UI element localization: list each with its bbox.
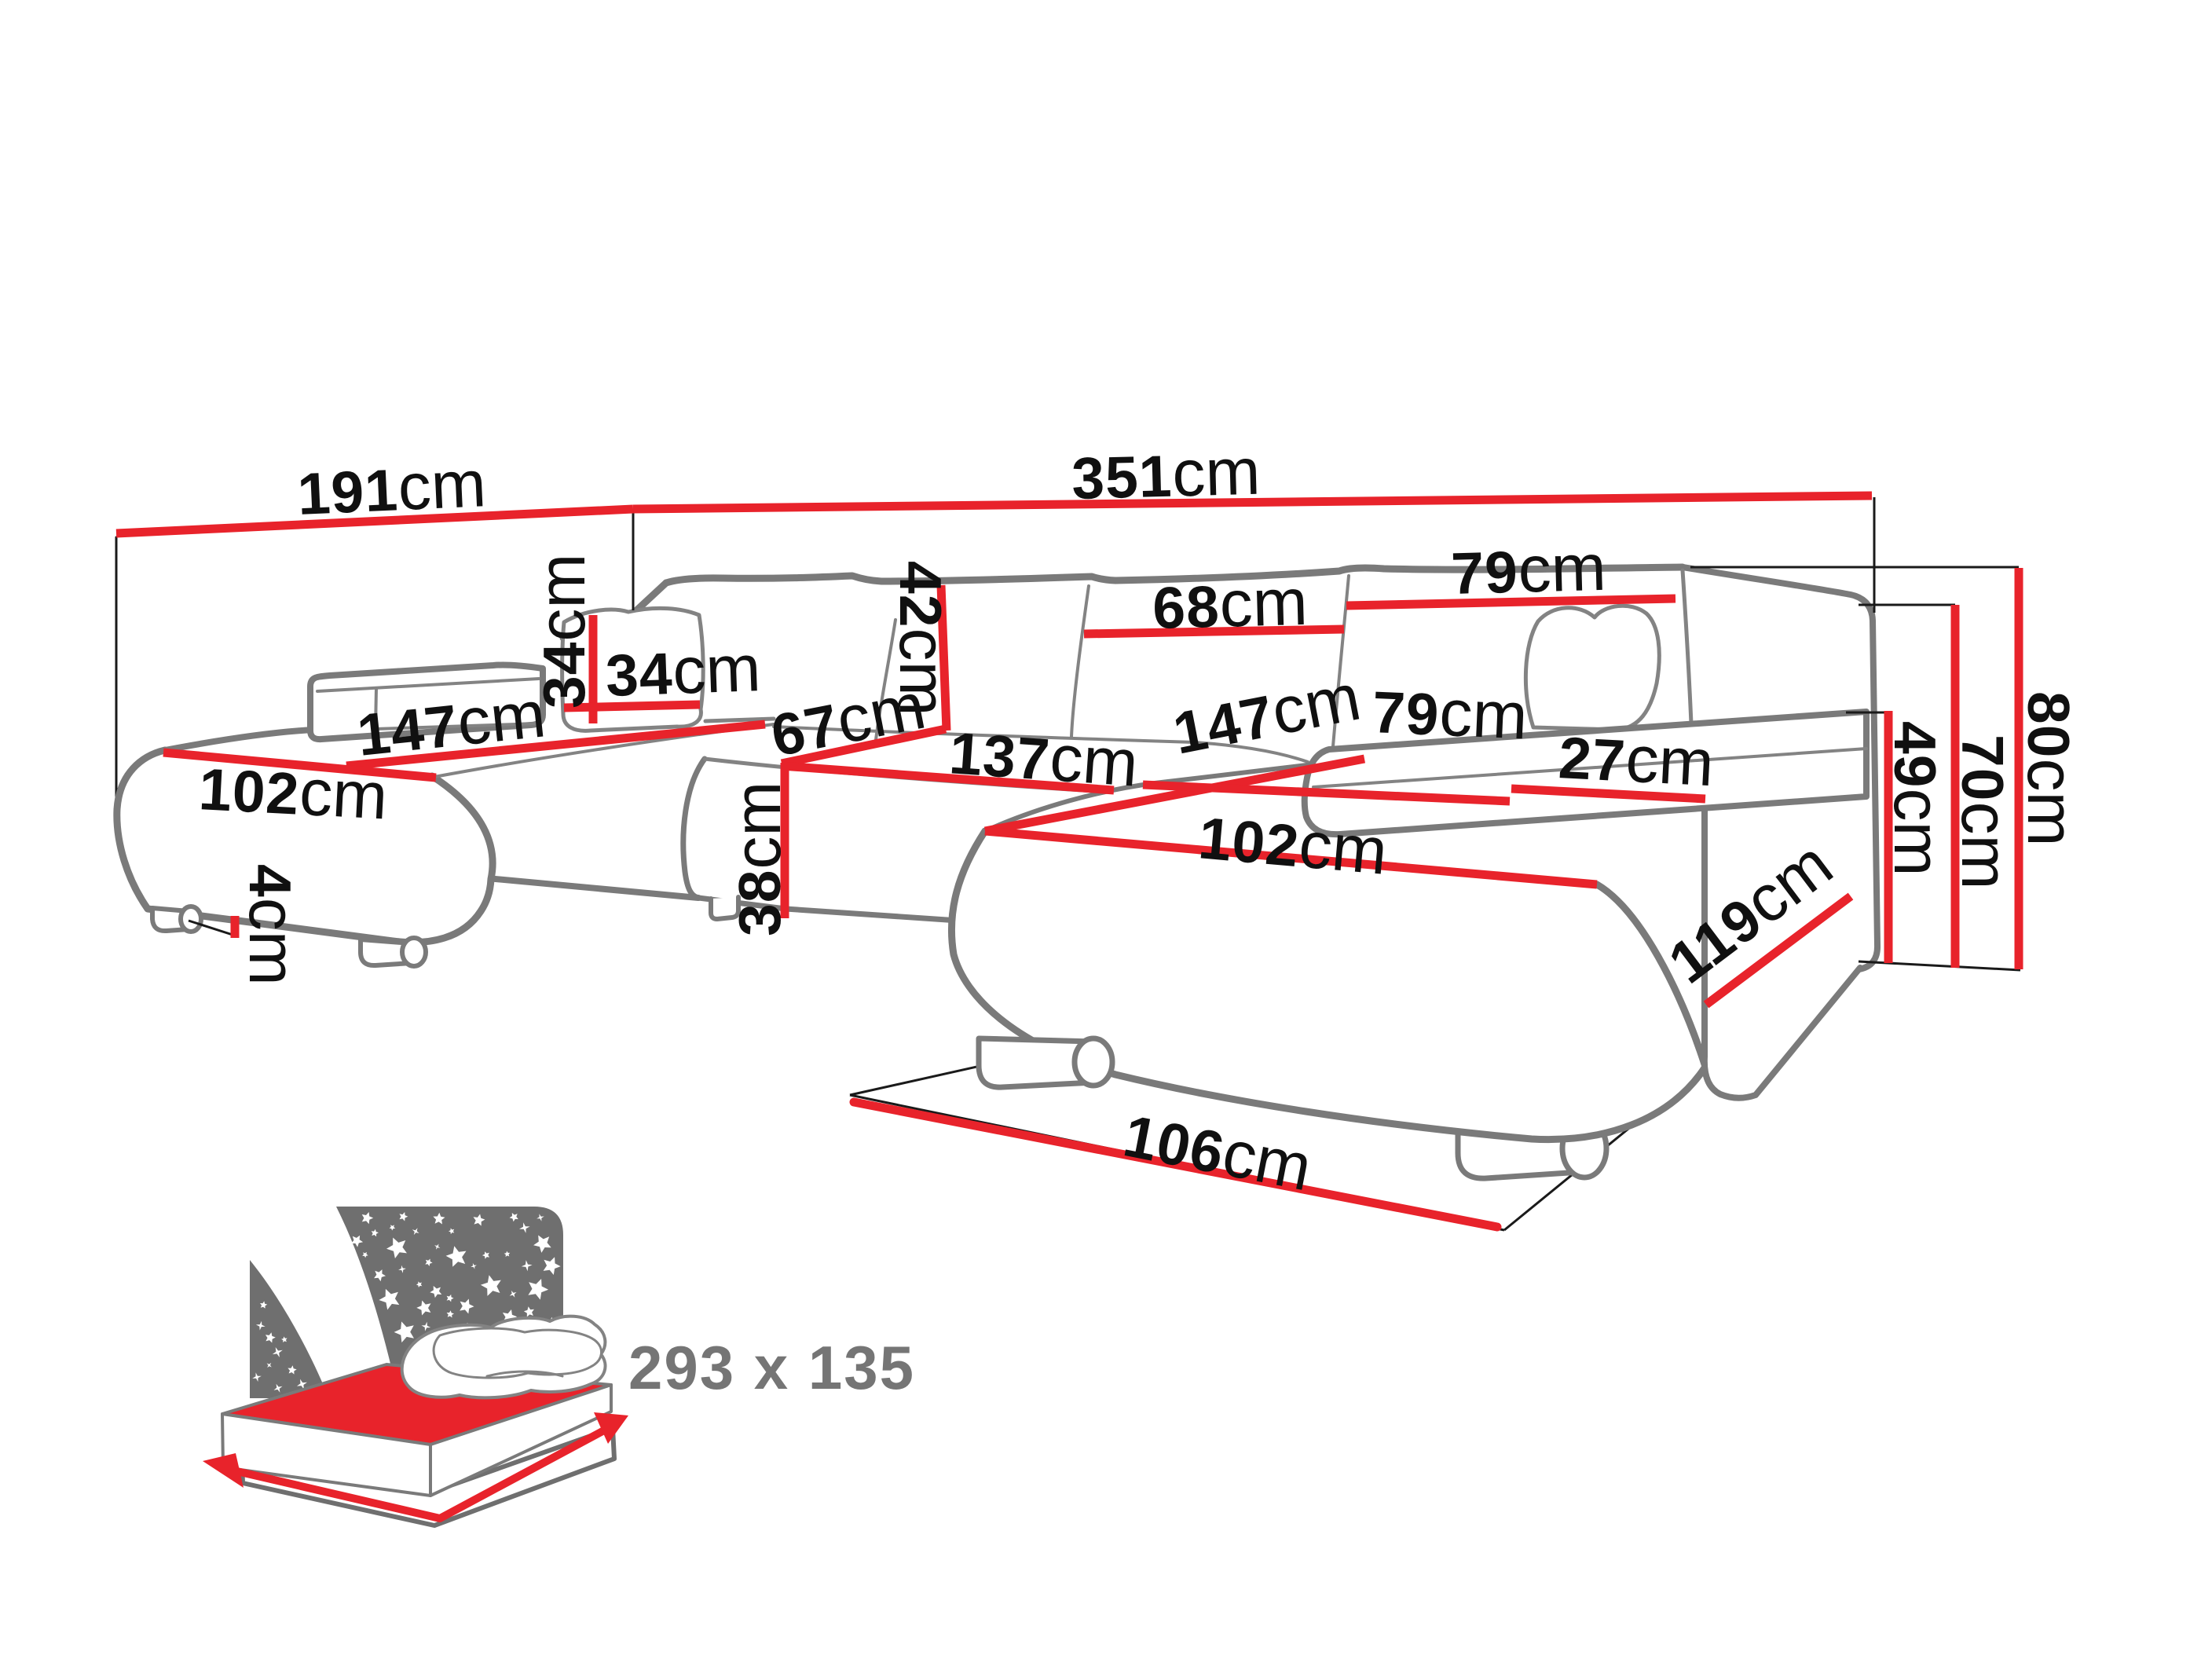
svg-text:68cm: 68cm <box>1152 565 1309 643</box>
svg-text:79cm: 79cm <box>1371 672 1529 753</box>
svg-text:38cm: 38cm <box>720 782 794 936</box>
svg-text:49cm: 49cm <box>1881 721 1954 876</box>
svg-text:79cm: 79cm <box>1450 530 1607 608</box>
svg-text:102cm: 102cm <box>197 749 390 833</box>
svg-text:191cm: 191cm <box>296 446 488 529</box>
svg-text:70cm: 70cm <box>1948 734 2022 889</box>
svg-text:351cm: 351cm <box>1071 434 1262 513</box>
svg-text:293 x 135: 293 x 135 <box>628 1333 915 1402</box>
svg-text:27cm: 27cm <box>1557 718 1716 800</box>
svg-text:4cm: 4cm <box>236 864 309 986</box>
svg-text:137cm: 137cm <box>947 713 1141 800</box>
svg-text:42cm: 42cm <box>886 561 960 716</box>
svg-text:34cm: 34cm <box>604 631 762 710</box>
svg-text:80cm: 80cm <box>2014 691 2088 846</box>
svg-text:106cm: 106cm <box>1119 1096 1318 1204</box>
